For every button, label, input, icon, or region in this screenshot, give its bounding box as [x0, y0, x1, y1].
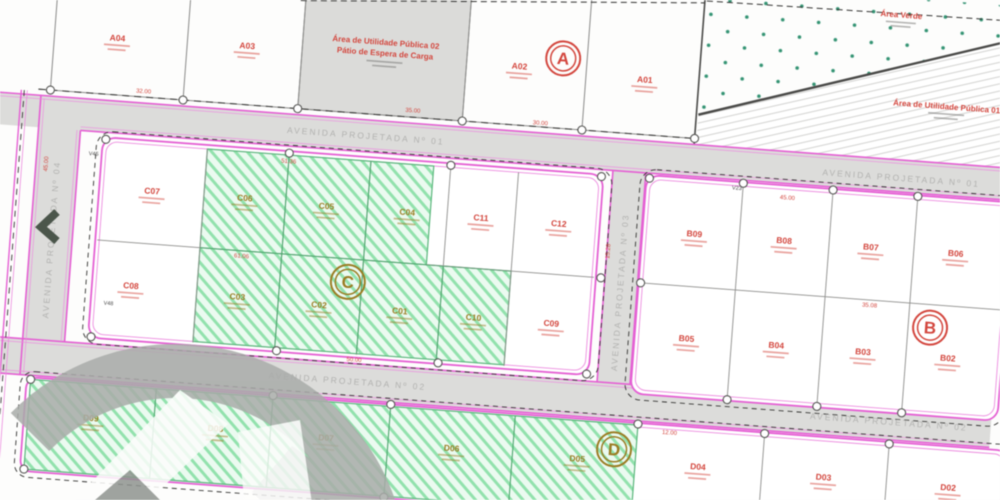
- block-c: [82, 131, 614, 382]
- lot-id-text: D05: [569, 453, 586, 464]
- lot-id-text: A02: [511, 61, 528, 72]
- dimension-label: 35.00: [405, 108, 421, 115]
- block-marker-letter: D: [607, 440, 621, 460]
- lot-id-text: B03: [855, 346, 872, 357]
- lot-id-text: B02: [940, 353, 957, 364]
- lot-id-text: B06: [948, 248, 965, 259]
- lot-id-text: C08: [123, 280, 140, 291]
- lot-id-text: A03: [239, 40, 256, 51]
- lot-id-text: B08: [776, 235, 793, 246]
- dimension-label: 35.08: [862, 303, 878, 310]
- dimension-label: 61.06: [234, 253, 250, 260]
- dimension-label: 30.00: [533, 120, 549, 127]
- lot-label-A04: A04: [104, 32, 131, 52]
- block-b: [624, 169, 1000, 428]
- lot-id-text: C04: [399, 207, 416, 218]
- block-marker-A: A: [545, 40, 581, 76]
- block-marker-letter: B: [923, 318, 937, 338]
- lot-id-text: C09: [543, 318, 560, 329]
- dimension-label: 45.00: [43, 156, 50, 172]
- lot-id-text: C06: [237, 192, 254, 203]
- lot-id-text: D02: [940, 482, 957, 493]
- lot-id-text: B09: [686, 228, 703, 239]
- subdivision-map: AVENIDA PROJETADA Nº 01 AVENIDA PROJETAD…: [0, 0, 1000, 500]
- lot-label-A02: A02: [506, 60, 533, 80]
- plat-map-screenshot: AVENIDA PROJETADA Nº 01 AVENIDA PROJETAD…: [0, 0, 1000, 500]
- block-marker-letter: C: [341, 272, 355, 292]
- vertex-label-V48: V48: [103, 301, 113, 308]
- dimension-label: 51.36: [281, 159, 297, 166]
- lot-id-text: C02: [311, 299, 328, 310]
- lot-id-text: D03: [815, 472, 832, 483]
- block-marker-letter: A: [556, 49, 570, 69]
- lot-id-text: A04: [109, 32, 126, 43]
- lot-id-text: C10: [465, 312, 482, 323]
- lot-id-text: C07: [144, 185, 161, 196]
- dimension-label: 50.00: [346, 357, 362, 364]
- lot-id-text: C01: [392, 305, 409, 316]
- dimension-label: 15.28: [605, 243, 612, 259]
- lot-id-text: B04: [768, 340, 785, 351]
- dimension-label: 45.00: [780, 195, 796, 202]
- dimension-label: 12.00: [662, 430, 678, 437]
- lot-id-text: C11: [473, 212, 489, 223]
- vertex-label-V45: V45: [88, 151, 98, 158]
- lot-id-text: D04: [690, 461, 707, 472]
- lot-label-A03: A03: [233, 40, 260, 60]
- lot-id-text: B05: [678, 333, 695, 344]
- lot-id-text: C03: [229, 291, 246, 302]
- lot-id-text: C05: [318, 200, 335, 211]
- lot-id-text: D06: [444, 443, 461, 454]
- lot-label-A01: A01: [631, 74, 658, 94]
- vertex-label-V23: V23: [732, 185, 742, 192]
- lot-id-text: A01: [637, 74, 654, 85]
- area-utilidade-publica-02-shape: [298, 0, 473, 121]
- lot-id-text: C12: [551, 218, 568, 229]
- lot-id-text: B07: [863, 241, 880, 252]
- dimension-label: 32.00: [136, 88, 152, 95]
